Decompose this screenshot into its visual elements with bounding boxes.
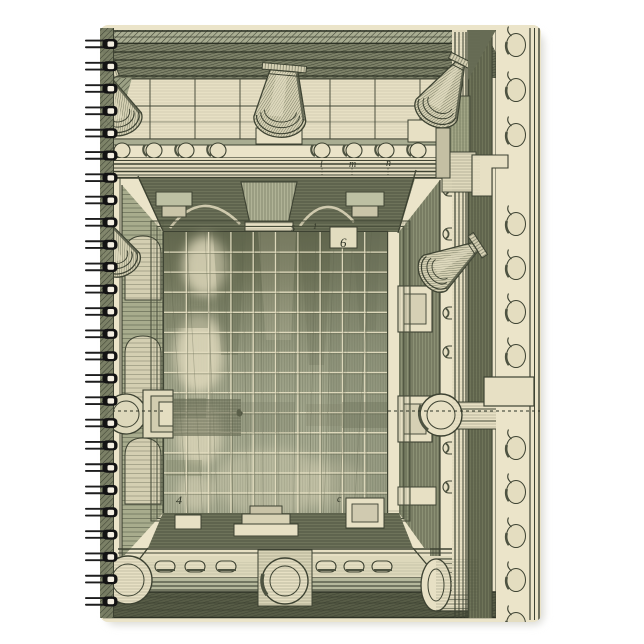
svg-text:c: c <box>337 494 342 505</box>
svg-text:5: 5 <box>291 224 295 233</box>
svg-text:1: 1 <box>313 222 317 231</box>
svg-text:4: 4 <box>176 493 182 507</box>
